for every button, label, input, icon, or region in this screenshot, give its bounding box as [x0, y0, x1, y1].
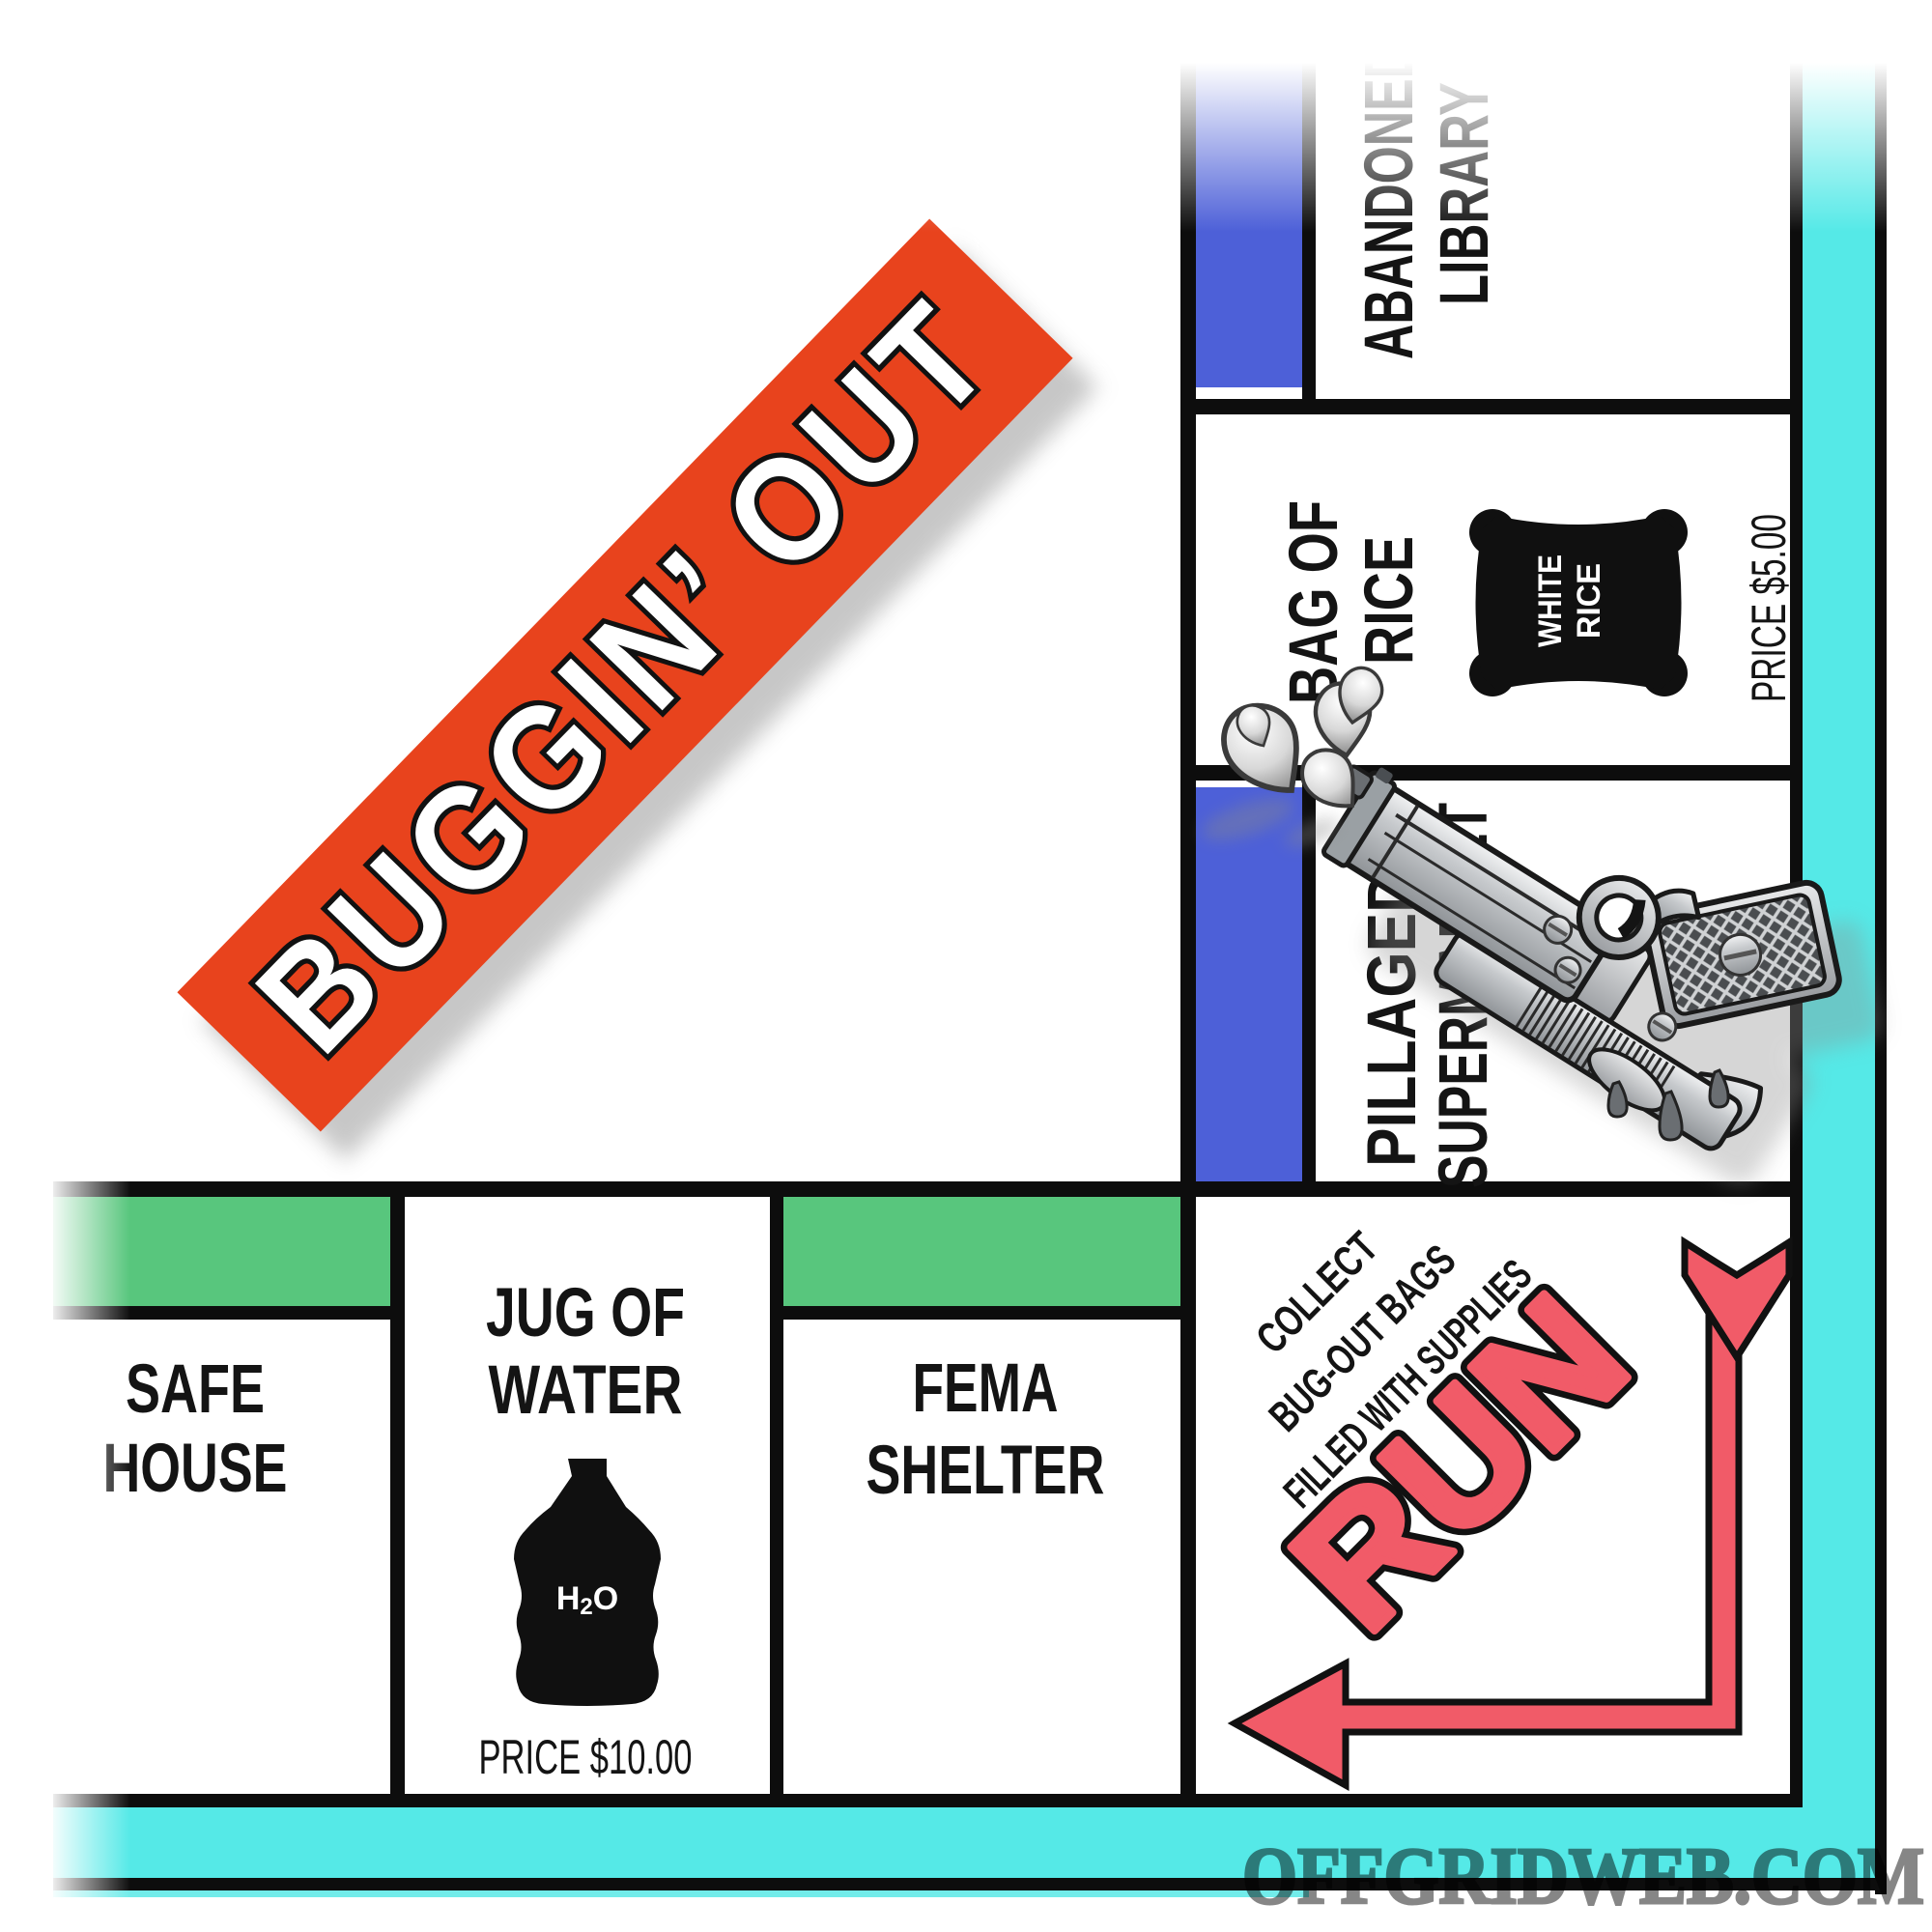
svg-text:SHELTER: SHELTER	[867, 1433, 1105, 1509]
svg-text:BAG OF: BAG OF	[1276, 500, 1352, 704]
svg-text:HOUSE: HOUSE	[103, 1431, 288, 1507]
svg-text:FEMA: FEMA	[913, 1350, 1059, 1427]
svg-text:WATER: WATER	[489, 1352, 683, 1429]
svg-text:RICE: RICE	[1351, 536, 1428, 665]
svg-text:SAFE: SAFE	[126, 1351, 265, 1428]
svg-text:JUG OF: JUG OF	[486, 1275, 685, 1351]
svg-text:RICE: RICE	[1571, 563, 1607, 639]
svg-text:PRICE $10.00: PRICE $10.00	[479, 1730, 693, 1784]
svg-text:WHITE: WHITE	[1532, 554, 1569, 647]
svg-text:OFFGRIDWEB.COM: OFFGRIDWEB.COM	[1242, 1832, 1924, 1921]
svg-text:PRICE $5.00: PRICE $5.00	[1742, 514, 1796, 702]
